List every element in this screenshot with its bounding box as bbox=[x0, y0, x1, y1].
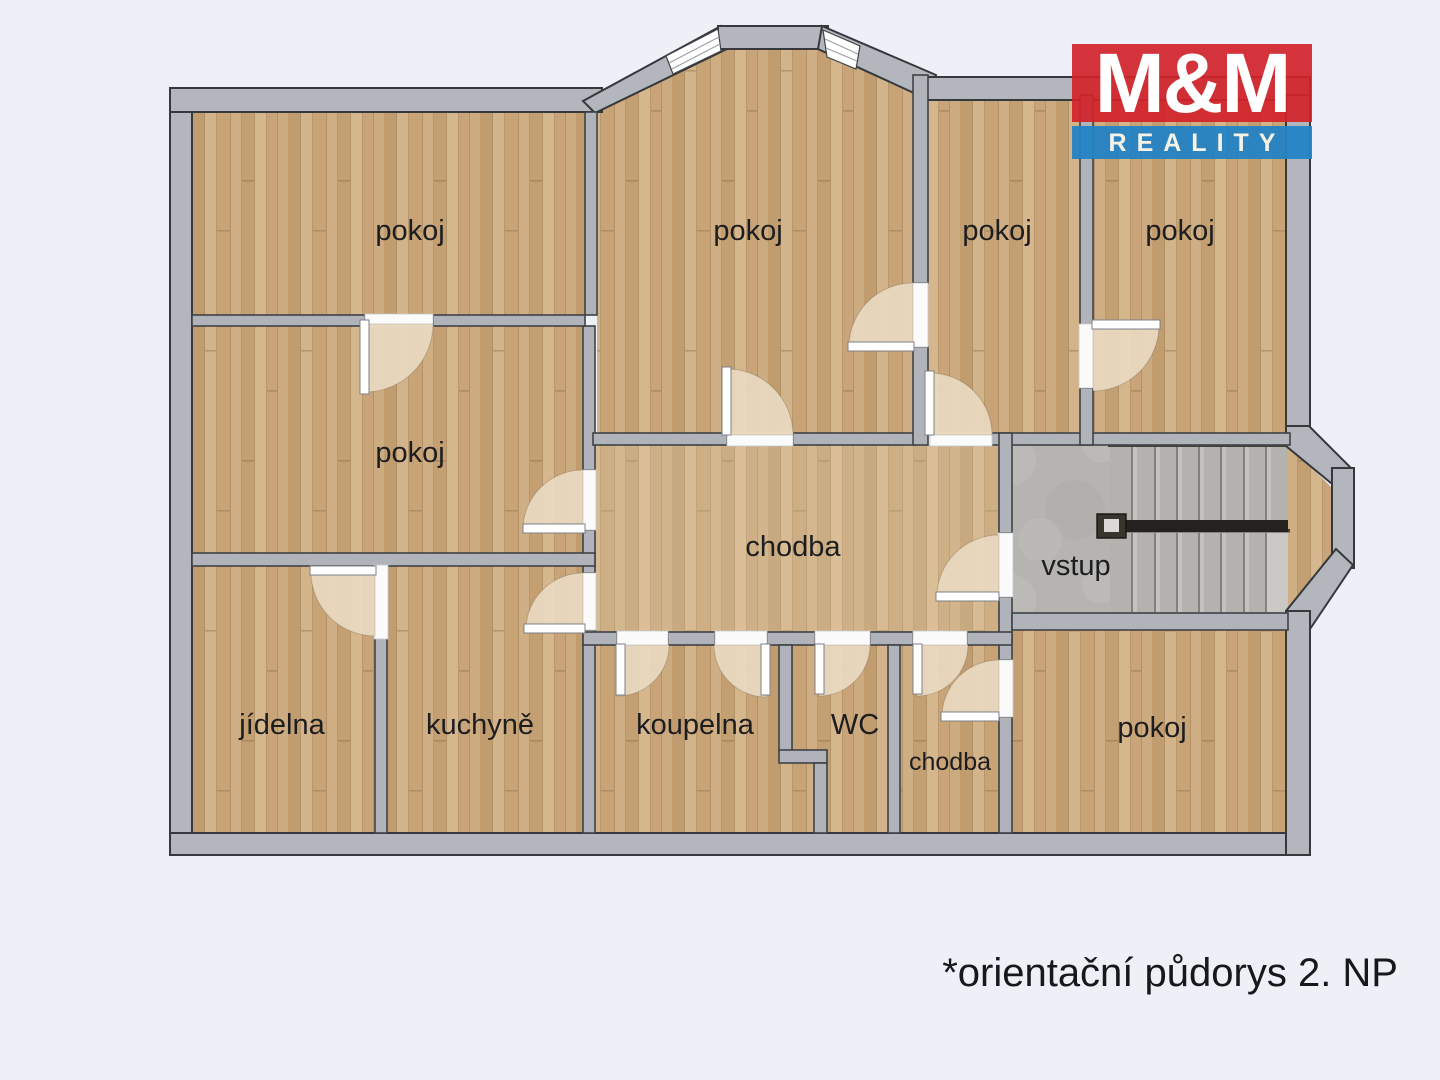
room-label-mid-left: pokoj bbox=[375, 437, 444, 469]
door-slab bbox=[925, 371, 934, 435]
wall-v5-a bbox=[999, 433, 1012, 533]
outer-wall-left bbox=[170, 88, 192, 855]
wall-v5-b bbox=[999, 597, 1012, 660]
room-label-top-left: pokoj bbox=[375, 215, 444, 247]
floor-bathroom-ext bbox=[779, 763, 814, 833]
stair-newel-cap bbox=[1104, 519, 1119, 532]
wall-h4-a bbox=[583, 632, 617, 645]
room-label-top-right-outer: pokoj bbox=[1145, 215, 1214, 247]
wall-v7-b bbox=[1080, 388, 1093, 445]
caption: *orientační půdorys 2. NP bbox=[942, 951, 1398, 995]
wall-spine-1 bbox=[585, 112, 597, 315]
door-slab bbox=[936, 592, 999, 601]
wall-spine-2 bbox=[583, 326, 595, 470]
outer-wall-bay-top bbox=[718, 26, 828, 49]
room-label-top-right-inner: pokoj bbox=[962, 215, 1031, 247]
room-label-wc: WC bbox=[831, 709, 879, 741]
wall-h1-b bbox=[433, 315, 585, 326]
door-slab bbox=[761, 644, 770, 695]
door-slab bbox=[523, 524, 585, 533]
wall-h4-b bbox=[668, 632, 715, 645]
wall-bath-wc-3 bbox=[814, 763, 827, 833]
wall-h3-b bbox=[793, 433, 915, 445]
wall-dining-kitchen bbox=[375, 638, 387, 833]
door-slab bbox=[616, 644, 625, 695]
floor-wc-ext bbox=[827, 750, 888, 833]
outer-wall-right-lower bbox=[1286, 611, 1310, 855]
wall-spine-4 bbox=[583, 630, 595, 833]
room-label-small-hallway: chodba bbox=[909, 748, 991, 776]
door-slab bbox=[722, 367, 731, 435]
wall-h3-c bbox=[990, 433, 1290, 445]
room-label-bottom-right: pokoj bbox=[1117, 712, 1186, 744]
room-label-dining: jídelna bbox=[238, 709, 325, 741]
door-slab bbox=[1092, 320, 1160, 329]
wall-v6-a bbox=[913, 75, 928, 283]
logo-bottom-text: REALITY bbox=[1109, 129, 1286, 157]
room-label-top-middle: pokoj bbox=[713, 215, 782, 247]
door-slab bbox=[360, 320, 369, 394]
wall-h4-d bbox=[870, 632, 913, 645]
room-label-entry: vstup bbox=[1041, 550, 1110, 582]
floor-room-top-left bbox=[192, 112, 585, 315]
wall-h2 bbox=[192, 553, 595, 566]
door-slab bbox=[913, 644, 922, 694]
room-label-kitchen: kuchyně bbox=[426, 709, 534, 741]
outer-wall-top-left bbox=[170, 88, 602, 112]
brand-logo: M&M REALITY bbox=[1072, 36, 1312, 159]
floor-plan-svg: M&M REALITY pokoj pokoj pokoj pokoj poko… bbox=[0, 0, 1440, 1080]
wall-h4-c bbox=[767, 632, 815, 645]
staircase bbox=[1097, 443, 1290, 612]
wall-v5-c bbox=[999, 717, 1012, 833]
room-label-hallway: chodba bbox=[745, 531, 841, 563]
outer-wall-bottom bbox=[170, 833, 1310, 855]
stairs-lower-landing bbox=[1266, 533, 1288, 612]
door-slab bbox=[524, 624, 585, 633]
wall-h3-a bbox=[593, 433, 727, 445]
room-label-bathroom: koupelna bbox=[636, 709, 755, 741]
wall-h5 bbox=[1012, 613, 1288, 630]
door-slab bbox=[941, 712, 999, 721]
wall-h4-e bbox=[967, 632, 1012, 645]
wall-bath-wc-1 bbox=[779, 645, 792, 752]
door-slab bbox=[310, 566, 376, 575]
wall-h1-a bbox=[192, 315, 365, 326]
door-slab bbox=[815, 644, 824, 694]
door-slab bbox=[848, 342, 914, 351]
floor-plan-page: M&M REALITY pokoj pokoj pokoj pokoj poko… bbox=[0, 0, 1440, 1080]
wall-bath-wc-2 bbox=[779, 750, 827, 763]
wall-wc-hall bbox=[888, 645, 900, 833]
stair-railing bbox=[1124, 520, 1288, 532]
logo-top-text: M&M bbox=[1095, 36, 1290, 130]
